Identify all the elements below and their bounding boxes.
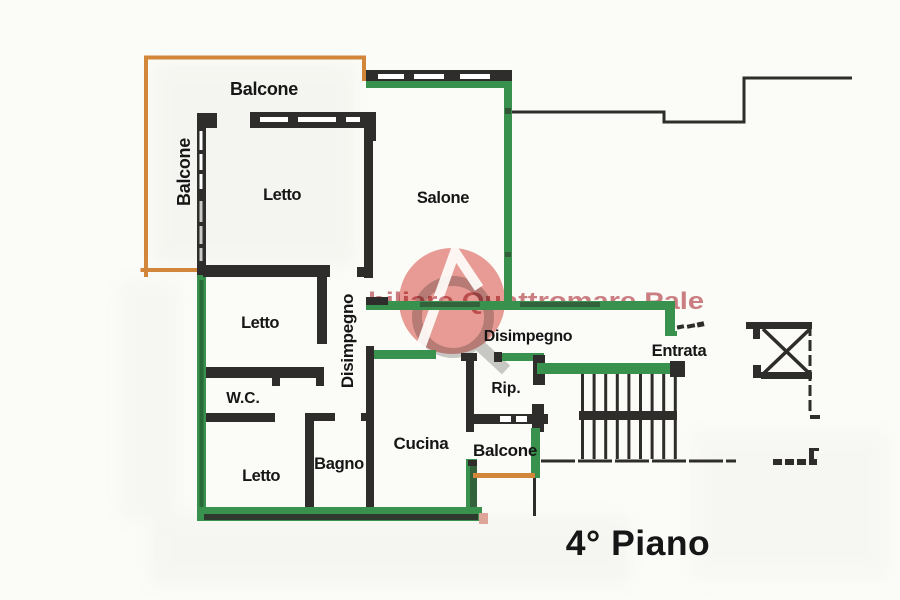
svg-text:Disimpegno: Disimpegno <box>484 328 573 345</box>
svg-text:Bagno: Bagno <box>314 455 364 473</box>
svg-text:Balcone: Balcone <box>473 441 537 460</box>
svg-text:Balcone: Balcone <box>230 79 298 99</box>
svg-text:Cucina: Cucina <box>394 434 450 453</box>
svg-text:Letto: Letto <box>241 314 279 332</box>
svg-text:4° Piano: 4° Piano <box>566 523 710 563</box>
svg-text:Entrata: Entrata <box>652 342 708 360</box>
svg-text:Letto: Letto <box>263 186 301 204</box>
svg-text:W.C.: W.C. <box>226 390 260 407</box>
svg-text:Rip.: Rip. <box>491 380 520 397</box>
svg-text:Salone: Salone <box>417 189 469 207</box>
svg-text:Balcone: Balcone <box>174 138 194 206</box>
svg-text:Disimpegno: Disimpegno <box>338 294 357 388</box>
svg-text:Letto: Letto <box>242 467 280 485</box>
